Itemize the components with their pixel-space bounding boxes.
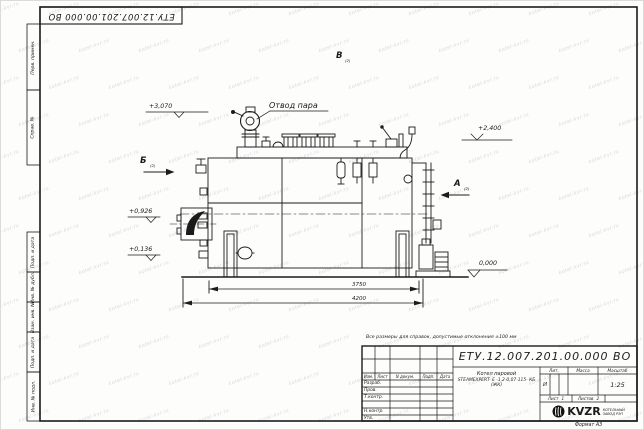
sheet-label: Лист [548, 396, 559, 401]
sheet-value: 1 [561, 396, 564, 401]
sig-row-prov: Пров. [362, 387, 390, 394]
mass-header: Масса [568, 367, 598, 374]
col-header-list: Лист [375, 373, 390, 380]
view-marker-a: А [454, 179, 461, 189]
boiler-body [170, 147, 430, 268]
reference-note: Все размеры для справок, допустимые откл… [366, 335, 517, 340]
manufacturer-logo-cell: KVZR КОТЕЛЬНЫЙ ЗАВОД РЭП [540, 402, 637, 421]
dimension-4200: 4200 [352, 296, 366, 302]
manhole [236, 247, 254, 259]
scale-header: Масштаб [598, 367, 637, 374]
elevation-0000: 0,000 [479, 260, 497, 267]
format-label: Формат А3 [540, 421, 637, 429]
logo-caption-line2: ЗАВОД РЭП [603, 412, 625, 416]
view-marker-b-sub: (2) [150, 163, 155, 168]
col-header-podp: Подп. [420, 373, 437, 380]
sig-row-razrab: Разраб. [362, 380, 390, 387]
view-marker-a-sub: (2) [464, 186, 469, 191]
sheets-value: 2 [596, 396, 599, 401]
side-column-vzam-inv: Взам. инв. № [27, 302, 40, 332]
side-column-label: Подп. и дата [31, 236, 36, 267]
feed-pump [412, 163, 450, 277]
elevation-3070: +3,070 [149, 103, 172, 110]
elevation-2400: +2,400 [478, 125, 501, 132]
sig-row-blank [362, 401, 390, 408]
sheets-label: Листов [578, 396, 594, 401]
drawing-sheet: kotel-kvr.rukotel-kvr.rukotel-kvr.rukote… [0, 0, 644, 430]
sheets-total-cell: Листов 2 [572, 395, 605, 402]
col-header-data: Дата [437, 373, 453, 380]
elevation-0136: +0,136 [129, 246, 152, 253]
lit-value: И [540, 374, 550, 395]
sig-row-nkontr: Н.контр. [362, 408, 390, 415]
product-model: STEAMEXPERT- Е -1,2-0,07-115- КБ (ЖК) [453, 379, 540, 386]
side-column-label: Инв. № подл. [31, 381, 36, 413]
safety-valve [231, 107, 260, 147]
side-column-label: Взам. инв. № [31, 301, 36, 332]
corner-stamp: ЕТУ.12.007.201.00.000 ВО [40, 7, 182, 24]
side-column-label: Справ. № [31, 116, 36, 138]
sig-row-tkontr: Т.контр. [362, 394, 390, 401]
steam-hatches [262, 134, 335, 147]
col-header-docum: N докум. [390, 373, 420, 380]
side-column-label: Перв. примен. [31, 40, 36, 75]
section-arrows [144, 169, 469, 198]
corner-stamp-doc-number: ЕТУ.12.007.201.00.000 ВО [48, 11, 175, 21]
sheet-number-cell: Лист 1 [540, 395, 572, 402]
title-block-doc-number: ЕТУ.12.007.201.00.000 ВО [453, 346, 637, 367]
dimension-lines [183, 279, 423, 307]
side-column-label: Подп. и дата [31, 336, 36, 367]
right-valve [380, 125, 415, 183]
boiler-drawing [128, 107, 512, 307]
wall-fittings [196, 159, 208, 258]
logo-caption: КОТЕЛЬНЫЙ ЗАВОД РЭП [603, 408, 625, 416]
side-column-inv-podl: Инв. № подл. [27, 372, 40, 421]
leader-line [257, 111, 328, 119]
view-marker-v: В [336, 51, 342, 61]
kvzr-emblem-icon [552, 405, 565, 418]
view-marker-v-sub: (2) [345, 58, 350, 63]
scale-value: 1:25 [598, 374, 637, 395]
lit-header: Лит. [540, 367, 568, 374]
side-column-perv-primen: Перв. примен. [27, 24, 40, 90]
col-header-izm: Изм. [362, 373, 375, 380]
sig-row-utv: Утв. [362, 415, 390, 421]
steam-outlet-label: Отвод пара [269, 101, 318, 110]
side-column-inv-dubl: Инв. № дубл. [27, 272, 40, 302]
elevation-0926: +0,926 [129, 208, 152, 215]
side-column-podp-data-1: Подп. и дата [27, 232, 40, 272]
dimension-3750: 3750 [352, 282, 366, 288]
side-column-podp-data-2: Подп. и дата [27, 332, 40, 372]
side-column-label: Инв. № дубл. [31, 271, 36, 302]
logo-text: KVZR [567, 405, 600, 418]
view-marker-b: Б [140, 156, 146, 166]
manufacturer-logo: KVZR КОТЕЛЬНЫЙ ЗАВОД РЭП [552, 405, 625, 418]
side-column-sprav-no: Справ. № [27, 90, 40, 165]
